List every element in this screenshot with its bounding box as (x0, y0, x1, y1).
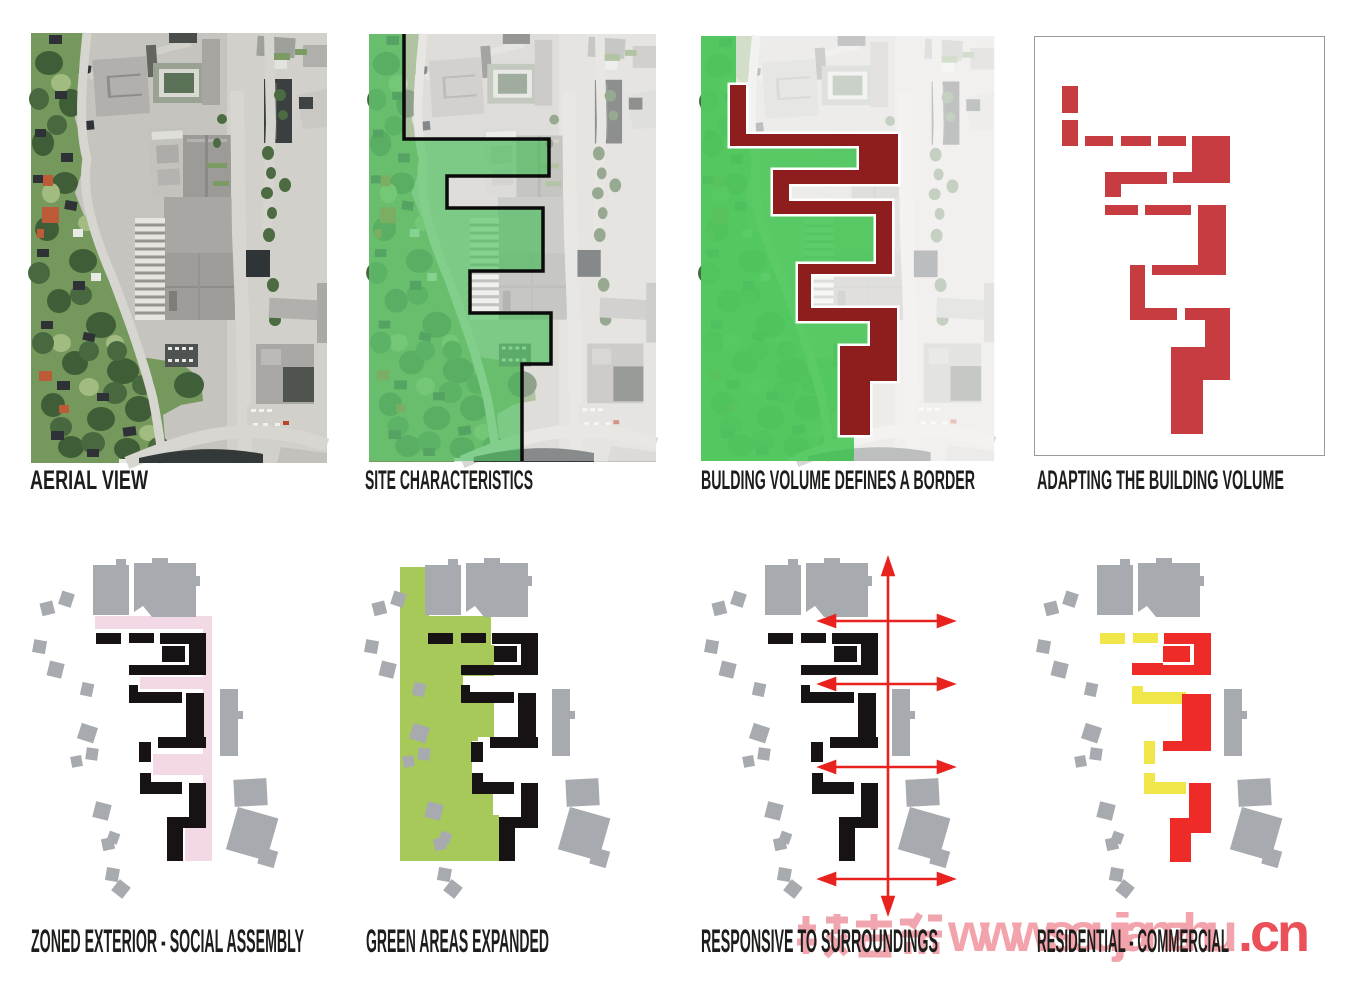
svg-text:.cn: .cn (1238, 903, 1310, 963)
svg-text:BULDING VOLUME DEFINES A BORDE: BULDING VOLUME DEFINES A BORDER (701, 465, 975, 495)
svg-text:ZONED EXTERIOR - SOCIAL ASSEMB: ZONED EXTERIOR - SOCIAL ASSEMBLY (31, 923, 304, 959)
svg-text:RESIDENTIAL - COMMERCIAL: RESIDENTIAL - COMMERCIAL (1037, 923, 1229, 959)
svg-text:SITE CHARACTERISTICS: SITE CHARACTERISTICS (365, 465, 533, 495)
svg-text:RESPONSIVE TO SURROUNDINGS: RESPONSIVE TO SURROUNDINGS (701, 923, 938, 959)
svg-text:ADAPTING THE BUILDING VOLUME: ADAPTING THE BUILDING VOLUME (1037, 465, 1284, 495)
svg-text:GREEN AREAS EXPANDED: GREEN AREAS EXPANDED (366, 923, 549, 959)
svg-text:AERIAL VIEW: AERIAL VIEW (30, 465, 148, 495)
